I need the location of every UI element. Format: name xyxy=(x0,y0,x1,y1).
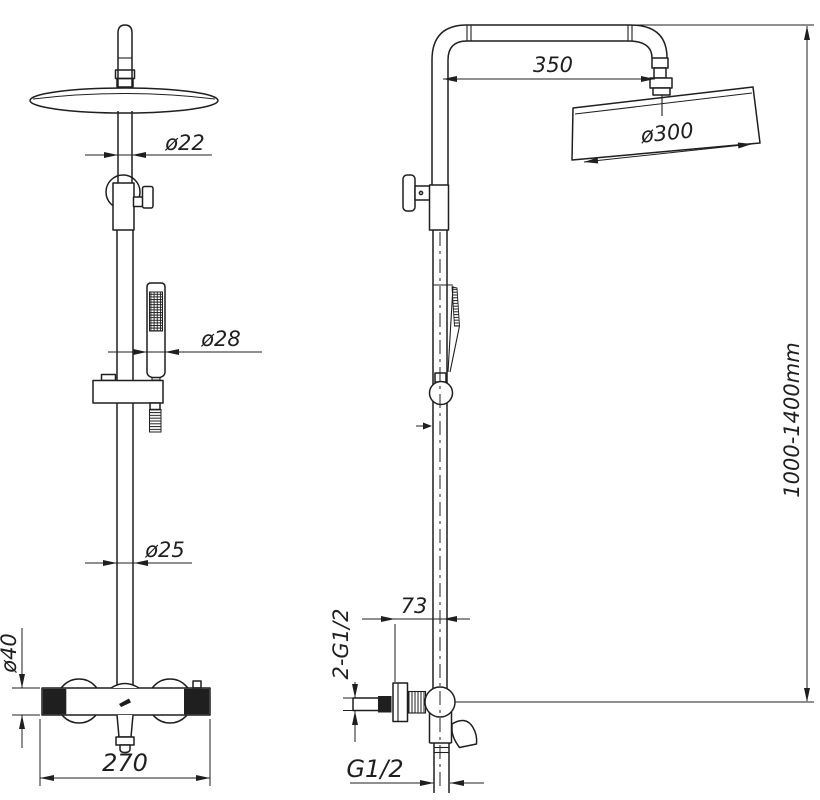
side-view: 350 ø300 1000-1400mm 73 xyxy=(329,25,814,793)
drawing-canvas: ø22 ø28 ø25 ø40 xyxy=(0,0,820,800)
wall-flange xyxy=(393,683,408,722)
head-connector-side xyxy=(650,58,672,95)
dim-label-valve-width: 270 xyxy=(102,749,148,777)
screw-threads xyxy=(150,410,162,433)
mixer-valve-front xyxy=(42,679,210,753)
dim-lower-pipe-diameter: ø25 xyxy=(85,538,192,566)
dim-label-valve-body: ø40 xyxy=(0,633,21,674)
shower-arm-cap-front xyxy=(116,25,135,88)
dim-hand-shower-diameter: ø28 xyxy=(108,327,262,355)
hand-shower-front xyxy=(147,283,165,380)
screw-shank xyxy=(150,403,160,410)
dim-wall-offset: 73 xyxy=(362,594,470,682)
shower-head-disc xyxy=(30,88,218,113)
slider-bracket-front xyxy=(93,375,163,433)
dim-label-arm-reach: 350 xyxy=(533,53,573,77)
dim-label-lower-pipe: ø25 xyxy=(144,538,185,562)
dim-inlet-threads: 2-G1/2 xyxy=(329,608,358,742)
dim-label-wall-offset: 73 xyxy=(401,594,428,618)
dim-label-height-range: 1000-1400mm xyxy=(780,342,804,497)
diverter-knob xyxy=(143,187,154,209)
spout-side xyxy=(452,720,477,747)
slider-knob-side xyxy=(430,382,453,405)
dim-label-top-pipe: ø22 xyxy=(164,131,205,155)
dim-top-pipe-diameter: ø22 xyxy=(85,131,212,158)
wall-inlet-stub xyxy=(353,698,379,711)
overhead-shower-head-front xyxy=(30,88,218,113)
handle-button xyxy=(193,681,201,688)
dim-valve-body-diameter: ø40 xyxy=(0,628,40,748)
left-handle-grip xyxy=(43,689,67,715)
wall-bracket-side xyxy=(403,175,449,230)
dim-outlet-thread: G1/2 xyxy=(346,755,484,786)
dim-label-outlet-thread: G1/2 xyxy=(346,755,403,783)
spout-body xyxy=(117,715,133,737)
technical-drawing-shower-column: ø22 ø28 ø25 ø40 xyxy=(0,0,820,800)
wall-inlet-seal xyxy=(378,696,392,713)
wall-bracket-front xyxy=(106,175,153,230)
riser-collar xyxy=(111,684,139,689)
right-handle-grip xyxy=(184,689,209,715)
front-view: ø22 ø28 ø25 ø40 xyxy=(0,25,262,786)
tube-pointer xyxy=(416,423,432,430)
connector-nut-threads xyxy=(409,692,426,714)
dim-arm-reach: 350 xyxy=(443,53,655,82)
diverter-knob-neck xyxy=(134,197,144,207)
dim-label-hand-shower: ø28 xyxy=(200,327,241,351)
dim-label-inlet-threads: 2-G1/2 xyxy=(329,608,353,679)
hand-shower-spray-face xyxy=(150,292,163,331)
